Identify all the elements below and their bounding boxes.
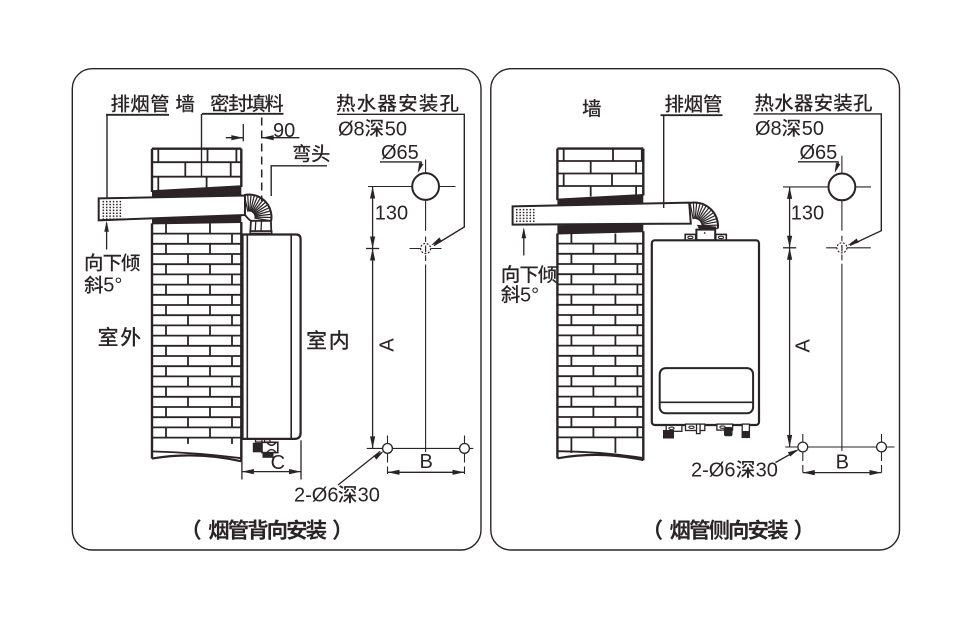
svg-text:B: B xyxy=(836,452,849,474)
svg-text:130: 130 xyxy=(375,203,408,225)
svg-text:A: A xyxy=(377,338,399,352)
svg-text:Ø8: Ø8 xyxy=(338,118,365,140)
svg-text:B: B xyxy=(420,451,433,473)
svg-text:C: C xyxy=(271,452,285,474)
svg-text:130: 130 xyxy=(791,202,824,224)
svg-text:5°: 5° xyxy=(103,275,122,297)
svg-text:5°: 5° xyxy=(520,285,539,307)
svg-text:30: 30 xyxy=(756,460,778,482)
svg-text:A: A xyxy=(793,338,815,352)
svg-text:Ø65: Ø65 xyxy=(381,142,419,164)
svg-text:Ø65: Ø65 xyxy=(800,142,838,164)
svg-text:2-Ø6: 2-Ø6 xyxy=(294,485,338,507)
svg-text:90: 90 xyxy=(273,120,295,142)
svg-text:30: 30 xyxy=(358,485,380,507)
svg-text:50: 50 xyxy=(385,118,407,140)
svg-text:2-Ø6: 2-Ø6 xyxy=(691,460,735,482)
svg-text:50: 50 xyxy=(802,118,824,140)
svg-text:Ø8: Ø8 xyxy=(755,118,782,140)
